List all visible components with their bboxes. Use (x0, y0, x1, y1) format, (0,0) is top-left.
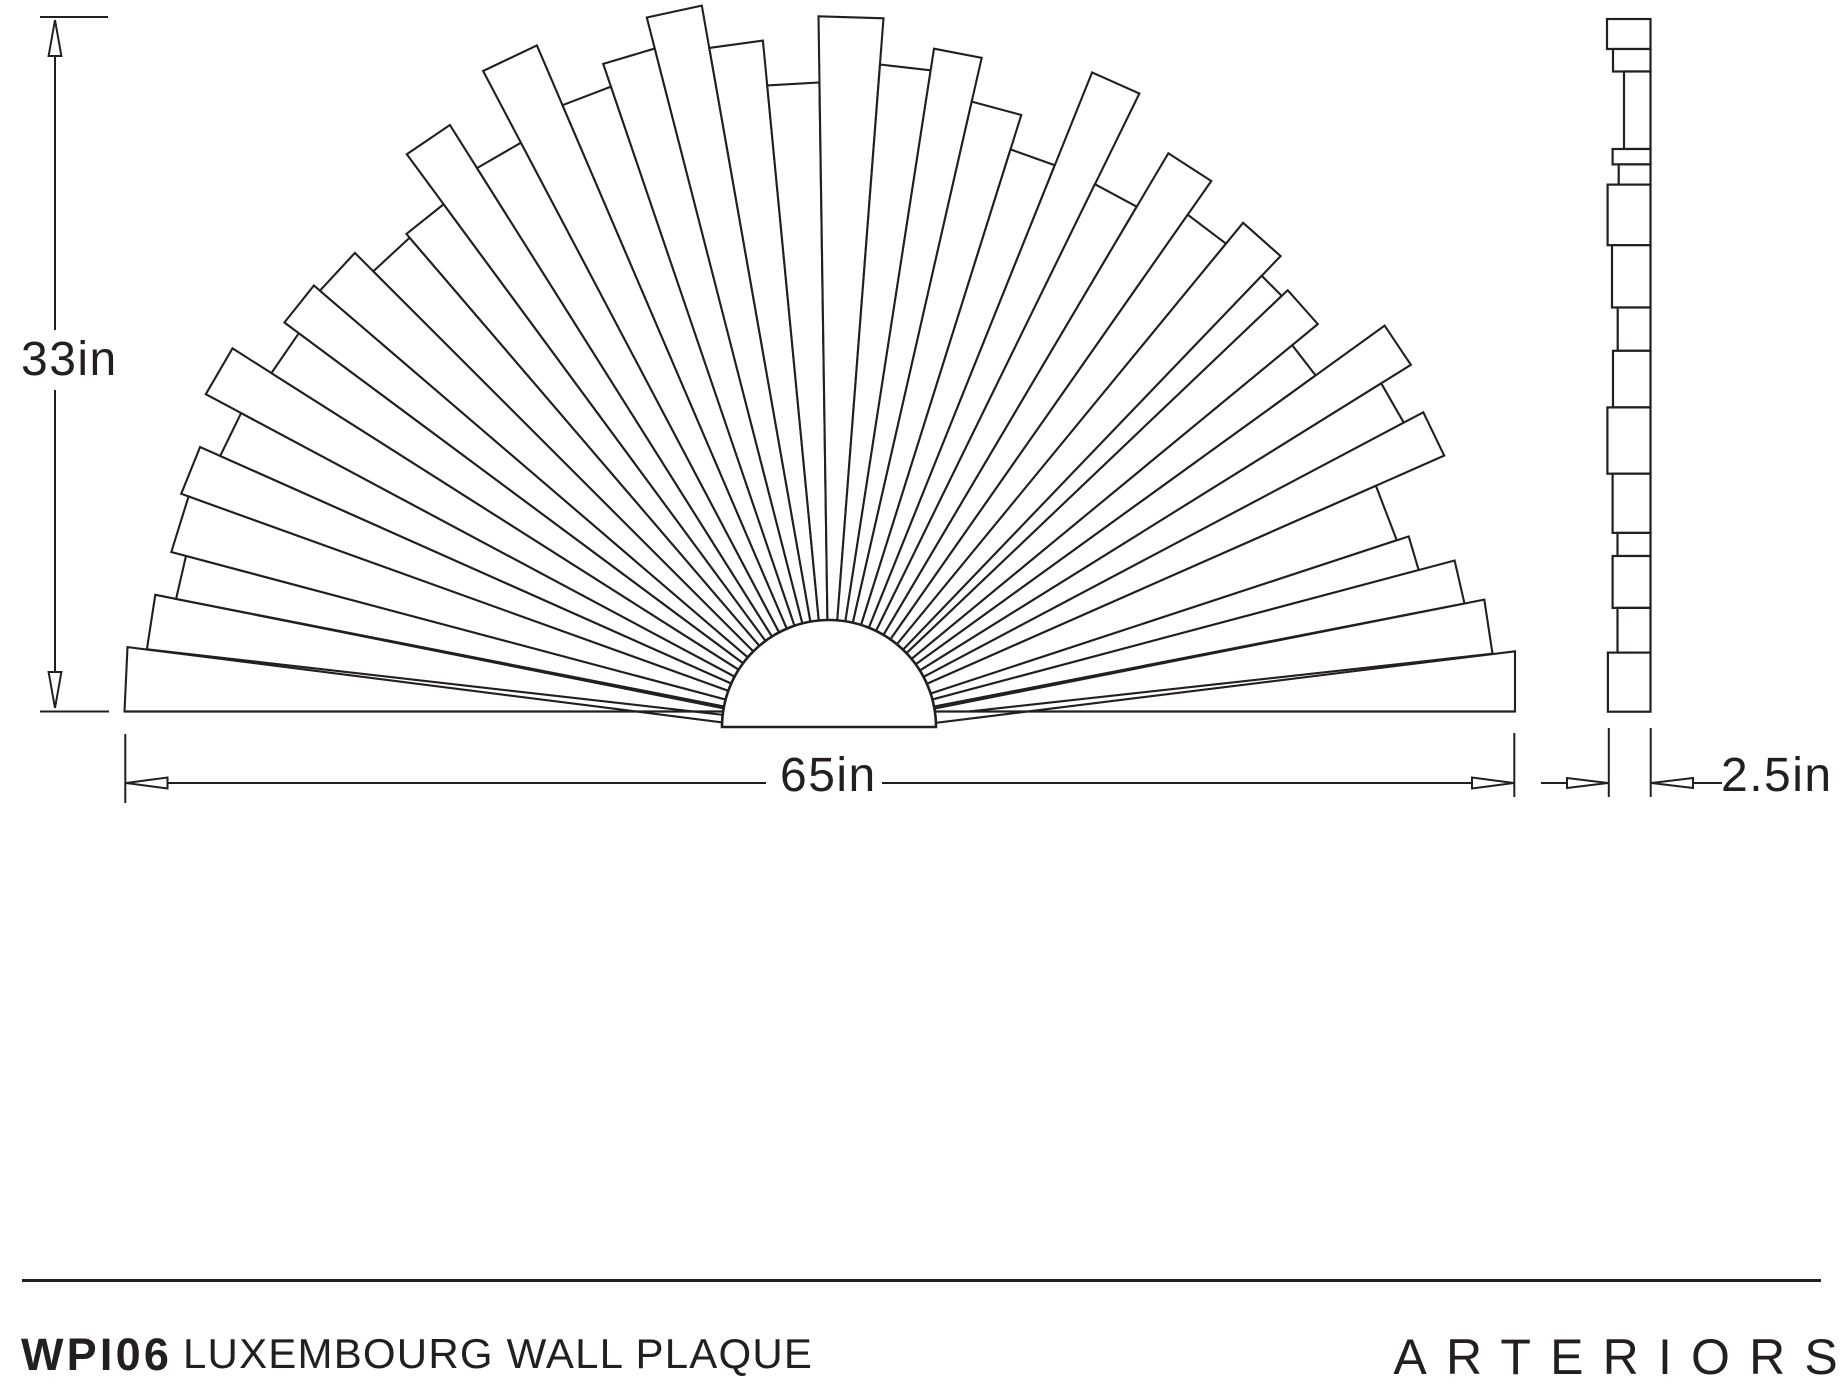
svg-text:33in: 33in (21, 333, 118, 386)
svg-text:WPI06: WPI06 (21, 1329, 172, 1380)
svg-text:65in: 65in (780, 749, 877, 802)
svg-text:2.5in: 2.5in (1721, 749, 1833, 802)
svg-text:LUXEMBOURG WALL PLAQUE: LUXEMBOURG WALL PLAQUE (183, 1330, 813, 1377)
svg-text:ARTERIORS: ARTERIORS (1393, 1329, 1841, 1385)
